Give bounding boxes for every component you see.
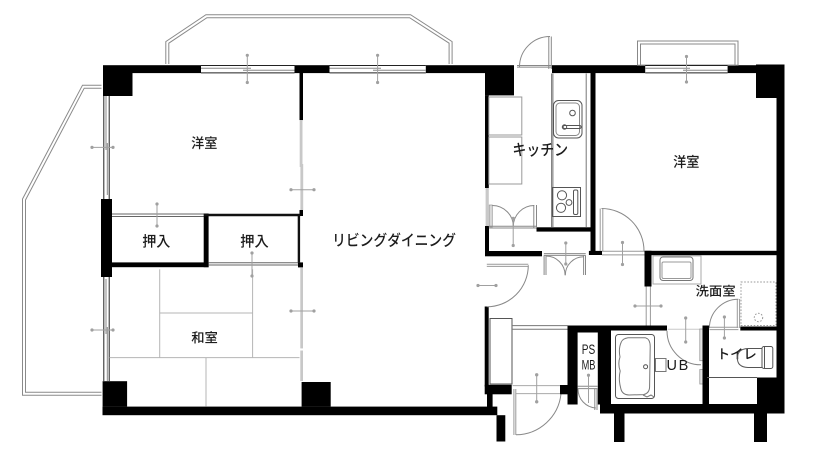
svg-text:PS: PS bbox=[582, 341, 595, 357]
svg-text:UB: UB bbox=[667, 358, 690, 374]
svg-text:MB: MB bbox=[582, 357, 596, 374]
